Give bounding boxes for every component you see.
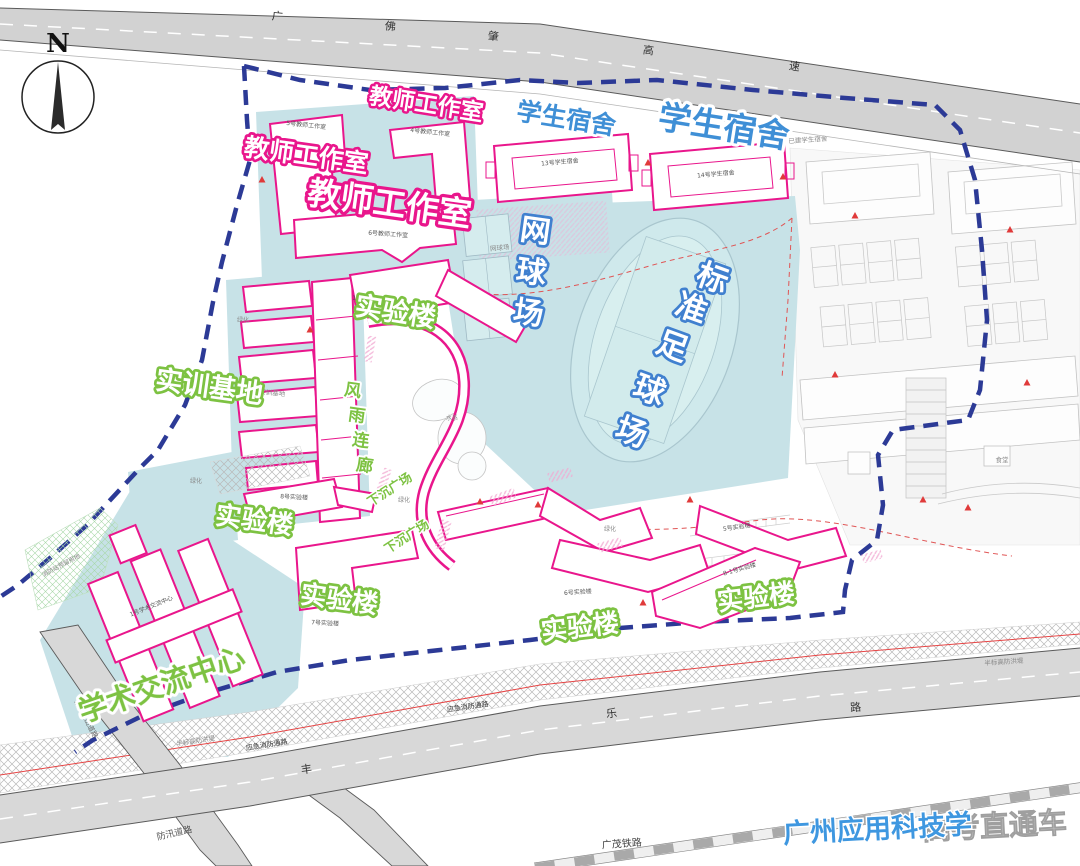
building-dorm-13 [486,134,638,202]
label-green-1: 绿化 [237,316,249,324]
fengle-char-3: 路 [850,701,862,715]
label-water: 水系 [446,414,458,422]
highway-char-2: 佛 [384,19,396,33]
fengle-char-1: 丰 [300,762,313,776]
highway-char-4: 高 [642,42,655,57]
tennis-char-3: 场 [511,294,546,333]
label-lab-8: 8号实验楼 [280,492,308,501]
label-green-2: 绿化 [190,477,202,485]
label-green-3: 绿化 [398,496,410,504]
label-lab-7: 7号实验楼 [311,618,339,627]
flood-road-label: 防汛道路 [155,823,193,843]
corridor-char-4: 廊 [355,454,375,477]
lab-label-3: 实验楼 [298,579,380,621]
label-lab-6: 6号实验楼 [564,587,592,597]
campus-master-plan: 已建学生宿舍 食堂 广 佛 肇 高 速 [0,0,1080,866]
compass-needle [51,62,65,130]
tennis-char-2: 球 [514,253,550,292]
watermark: 高考直通车 广州应用科技学 [782,805,1067,850]
corridor-char-2: 雨 [347,405,367,427]
site-plan-svg: 已建学生宿舍 食堂 广 佛 肇 高 速 [0,0,1080,866]
highway-char-5: 速 [788,59,801,73]
compass-n: N [46,29,70,59]
tennis-char-1: 网 [518,212,553,251]
fengle-char-2: 乐 [605,706,617,720]
corridor-char-1: 风 [343,380,363,402]
highway-char-1: 广 [271,9,283,23]
lab-label-4: 实验楼 [539,607,620,647]
corridor-char-3: 连 [351,429,372,452]
railway-label: 广茂铁路 [601,836,642,852]
stair-structure-existing [906,378,946,498]
highway-char-3: 肇 [487,28,499,43]
label-green-4: 绿化 [604,525,616,533]
existing-dorm-label: 已建学生宿舍 [788,134,828,146]
canteen-label: 食堂 [996,455,1010,464]
